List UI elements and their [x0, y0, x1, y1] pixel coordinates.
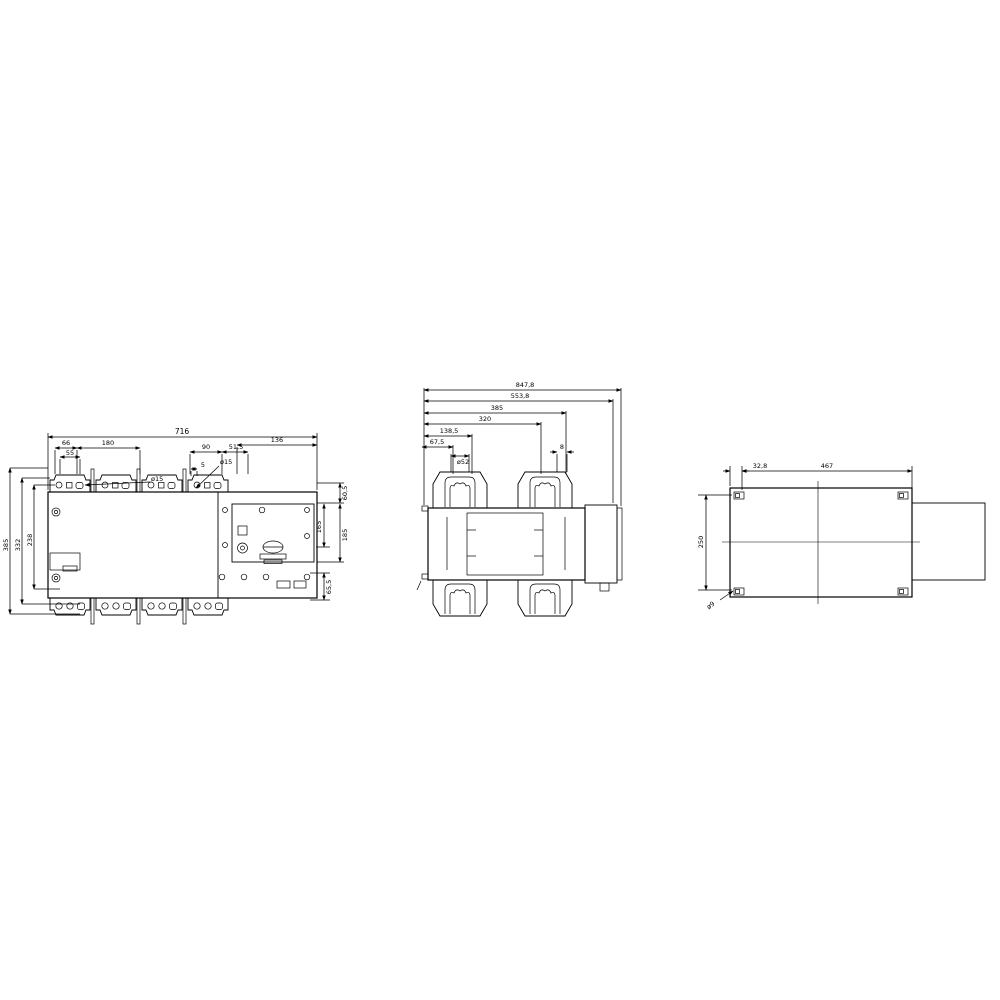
front-left-dim-a: 66: [62, 439, 70, 447]
front-right-dim-a: 90: [202, 443, 210, 451]
top-dim-w2: 553,8: [511, 392, 530, 400]
front-right-dim-c: 5: [201, 461, 205, 469]
front-vert-inner-dim: 238: [26, 534, 34, 546]
front-vert-mid-dim: 332: [14, 539, 22, 551]
top-dim-w5: 138,5: [440, 427, 459, 435]
front-overall-width-dim: 716: [175, 427, 190, 436]
front-hole-callout-right: ø15: [220, 458, 232, 466]
side-dimensions: 32,8 467 250 ø9: [697, 462, 912, 611]
front-left-dim-c: 55: [66, 449, 74, 457]
switch-mechanism: [238, 526, 287, 564]
front-terminal-brackets: [50, 475, 228, 615]
top-dim-w3: 385: [491, 404, 503, 412]
top-clamp-dia-dim: ø52: [457, 458, 469, 466]
top-body-outline: [417, 505, 622, 591]
front-rv-outer-dim: 185: [341, 529, 349, 541]
front-rv-bottom-dim: 65,5: [325, 580, 333, 594]
front-vert-outer-dim: 385: [2, 539, 10, 551]
side-hole-callout: ø9: [705, 600, 716, 611]
side-view: 32,8 467 250 ø9: [697, 462, 985, 611]
front-right-dim-d: 136: [271, 436, 283, 444]
side-height-dim: 250: [697, 536, 705, 548]
side-offset-dim: 32,8: [753, 462, 767, 470]
rating-label: [50, 553, 80, 570]
front-view: 716 66 180 55 ø15 90 51,5: [2, 427, 349, 624]
top-dim-w4: 320: [479, 415, 491, 423]
front-hole-callout-left: ø15: [151, 475, 163, 483]
top-dimensions: 847,8 553,8 385 320 138,5 67,5 ø52 8: [422, 381, 621, 506]
side-depth-dim: 467: [821, 462, 833, 470]
front-right-dim-b: 51,5: [229, 443, 243, 451]
side-body-outline: [722, 481, 985, 604]
front-rv-top-dim: 60,5: [341, 486, 349, 500]
top-slot-dim: 8: [560, 443, 564, 451]
top-view: 847,8 553,8 385 320 138,5 67,5 ø52 8: [417, 381, 622, 616]
top-terminal-feet: [433, 472, 572, 616]
top-dim-w6: 67,5: [430, 438, 444, 446]
dimension-drawing-svg: 716 66 180 55 ø15 90 51,5: [0, 0, 1000, 1000]
top-dim-w1: 847,8: [516, 381, 535, 389]
front-dimensions: 716 66 180 55 ø15 90 51,5: [2, 427, 349, 614]
side-handle-block: [912, 503, 985, 580]
front-left-dim-b: 180: [102, 439, 114, 447]
technical-drawing-page: 716 66 180 55 ø15 90 51,5: [0, 0, 1000, 1000]
front-rv-inner-dim: 165: [315, 521, 323, 533]
